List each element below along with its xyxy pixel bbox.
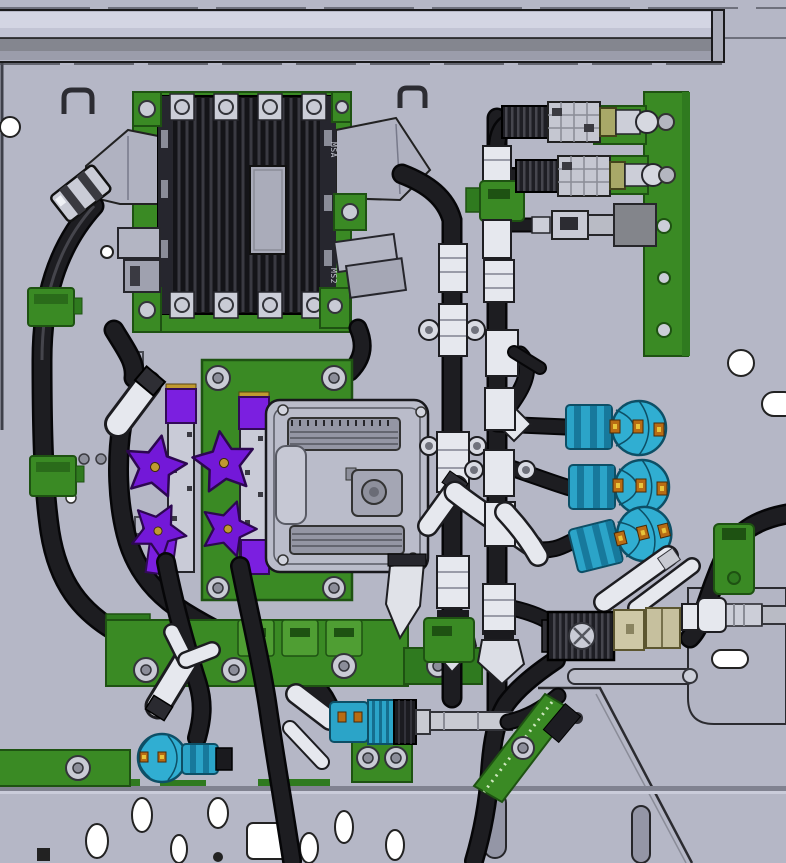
- cad-assembly-view: Chassis mounting panel with holes: [0, 0, 786, 863]
- coupler-large: [330, 700, 430, 744]
- ecu-box: [266, 400, 428, 572]
- module-marking-top: MSA: [329, 142, 338, 158]
- top-rail: Top frame rail: [0, 10, 724, 62]
- module-marking-bottom: MS2: [329, 268, 338, 284]
